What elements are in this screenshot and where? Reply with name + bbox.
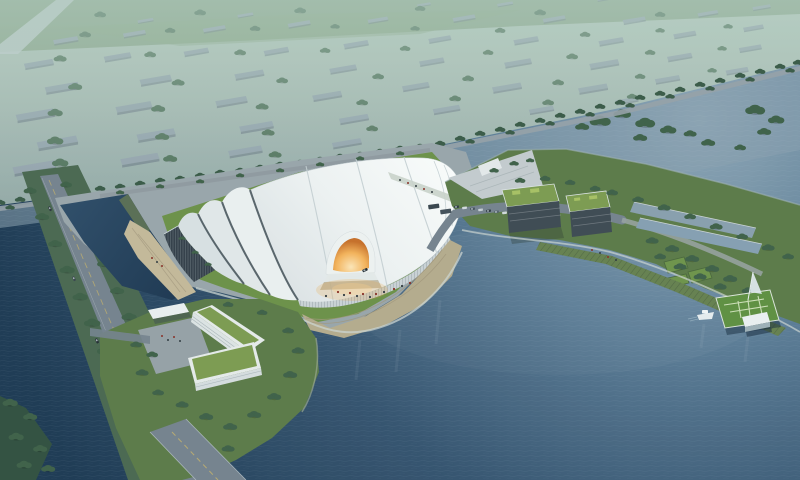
aerial-rendering (0, 0, 800, 480)
color-cast (0, 0, 800, 480)
rendering-canvas (0, 0, 800, 480)
